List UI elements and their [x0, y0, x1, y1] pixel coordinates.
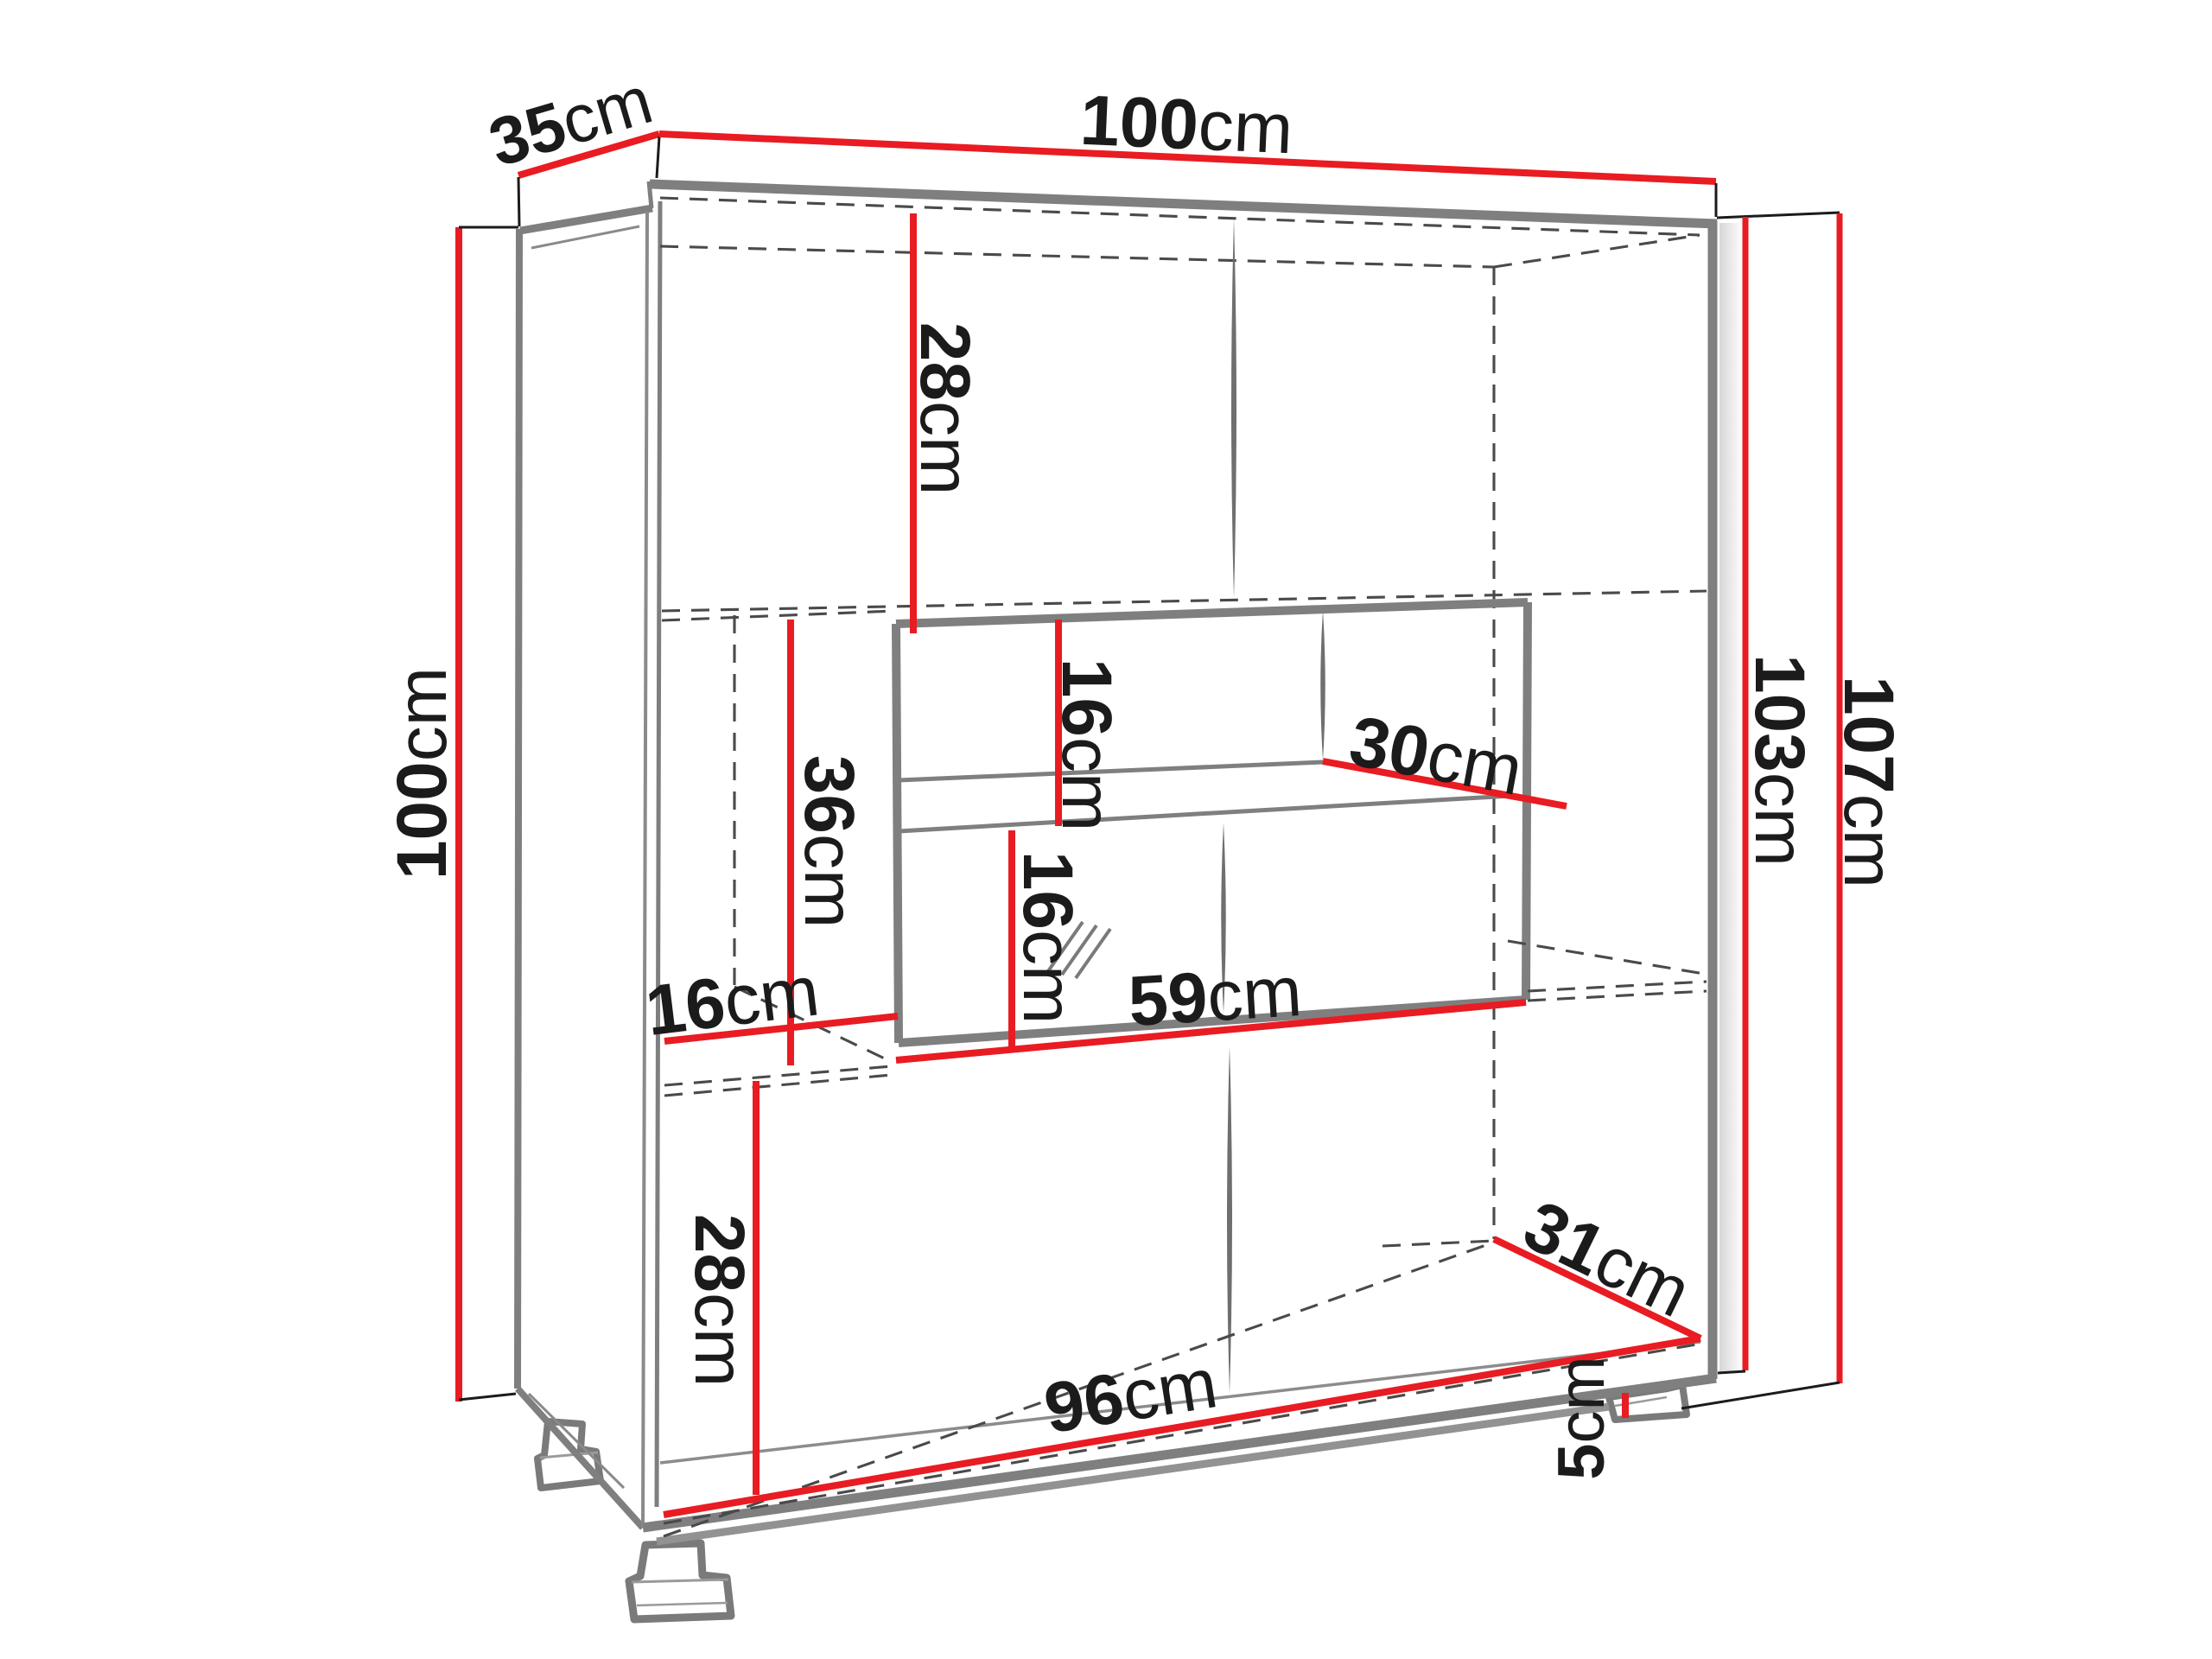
svg-text:28cm: 28cm [906, 322, 984, 496]
svg-text:16cm: 16cm [1008, 851, 1087, 1025]
svg-text:59cm: 59cm [1126, 952, 1304, 1041]
svg-text:16cm: 16cm [1047, 658, 1126, 832]
svg-text:103cm: 103cm [1740, 654, 1819, 867]
svg-text:5cm: 5cm [1545, 1356, 1618, 1480]
svg-text:107cm: 107cm [1829, 676, 1908, 888]
svg-text:36cm: 36cm [790, 755, 868, 929]
svg-text:28cm: 28cm [680, 1214, 759, 1388]
svg-text:100cm: 100cm [1078, 81, 1294, 169]
svg-text:100cm: 100cm [383, 667, 461, 880]
